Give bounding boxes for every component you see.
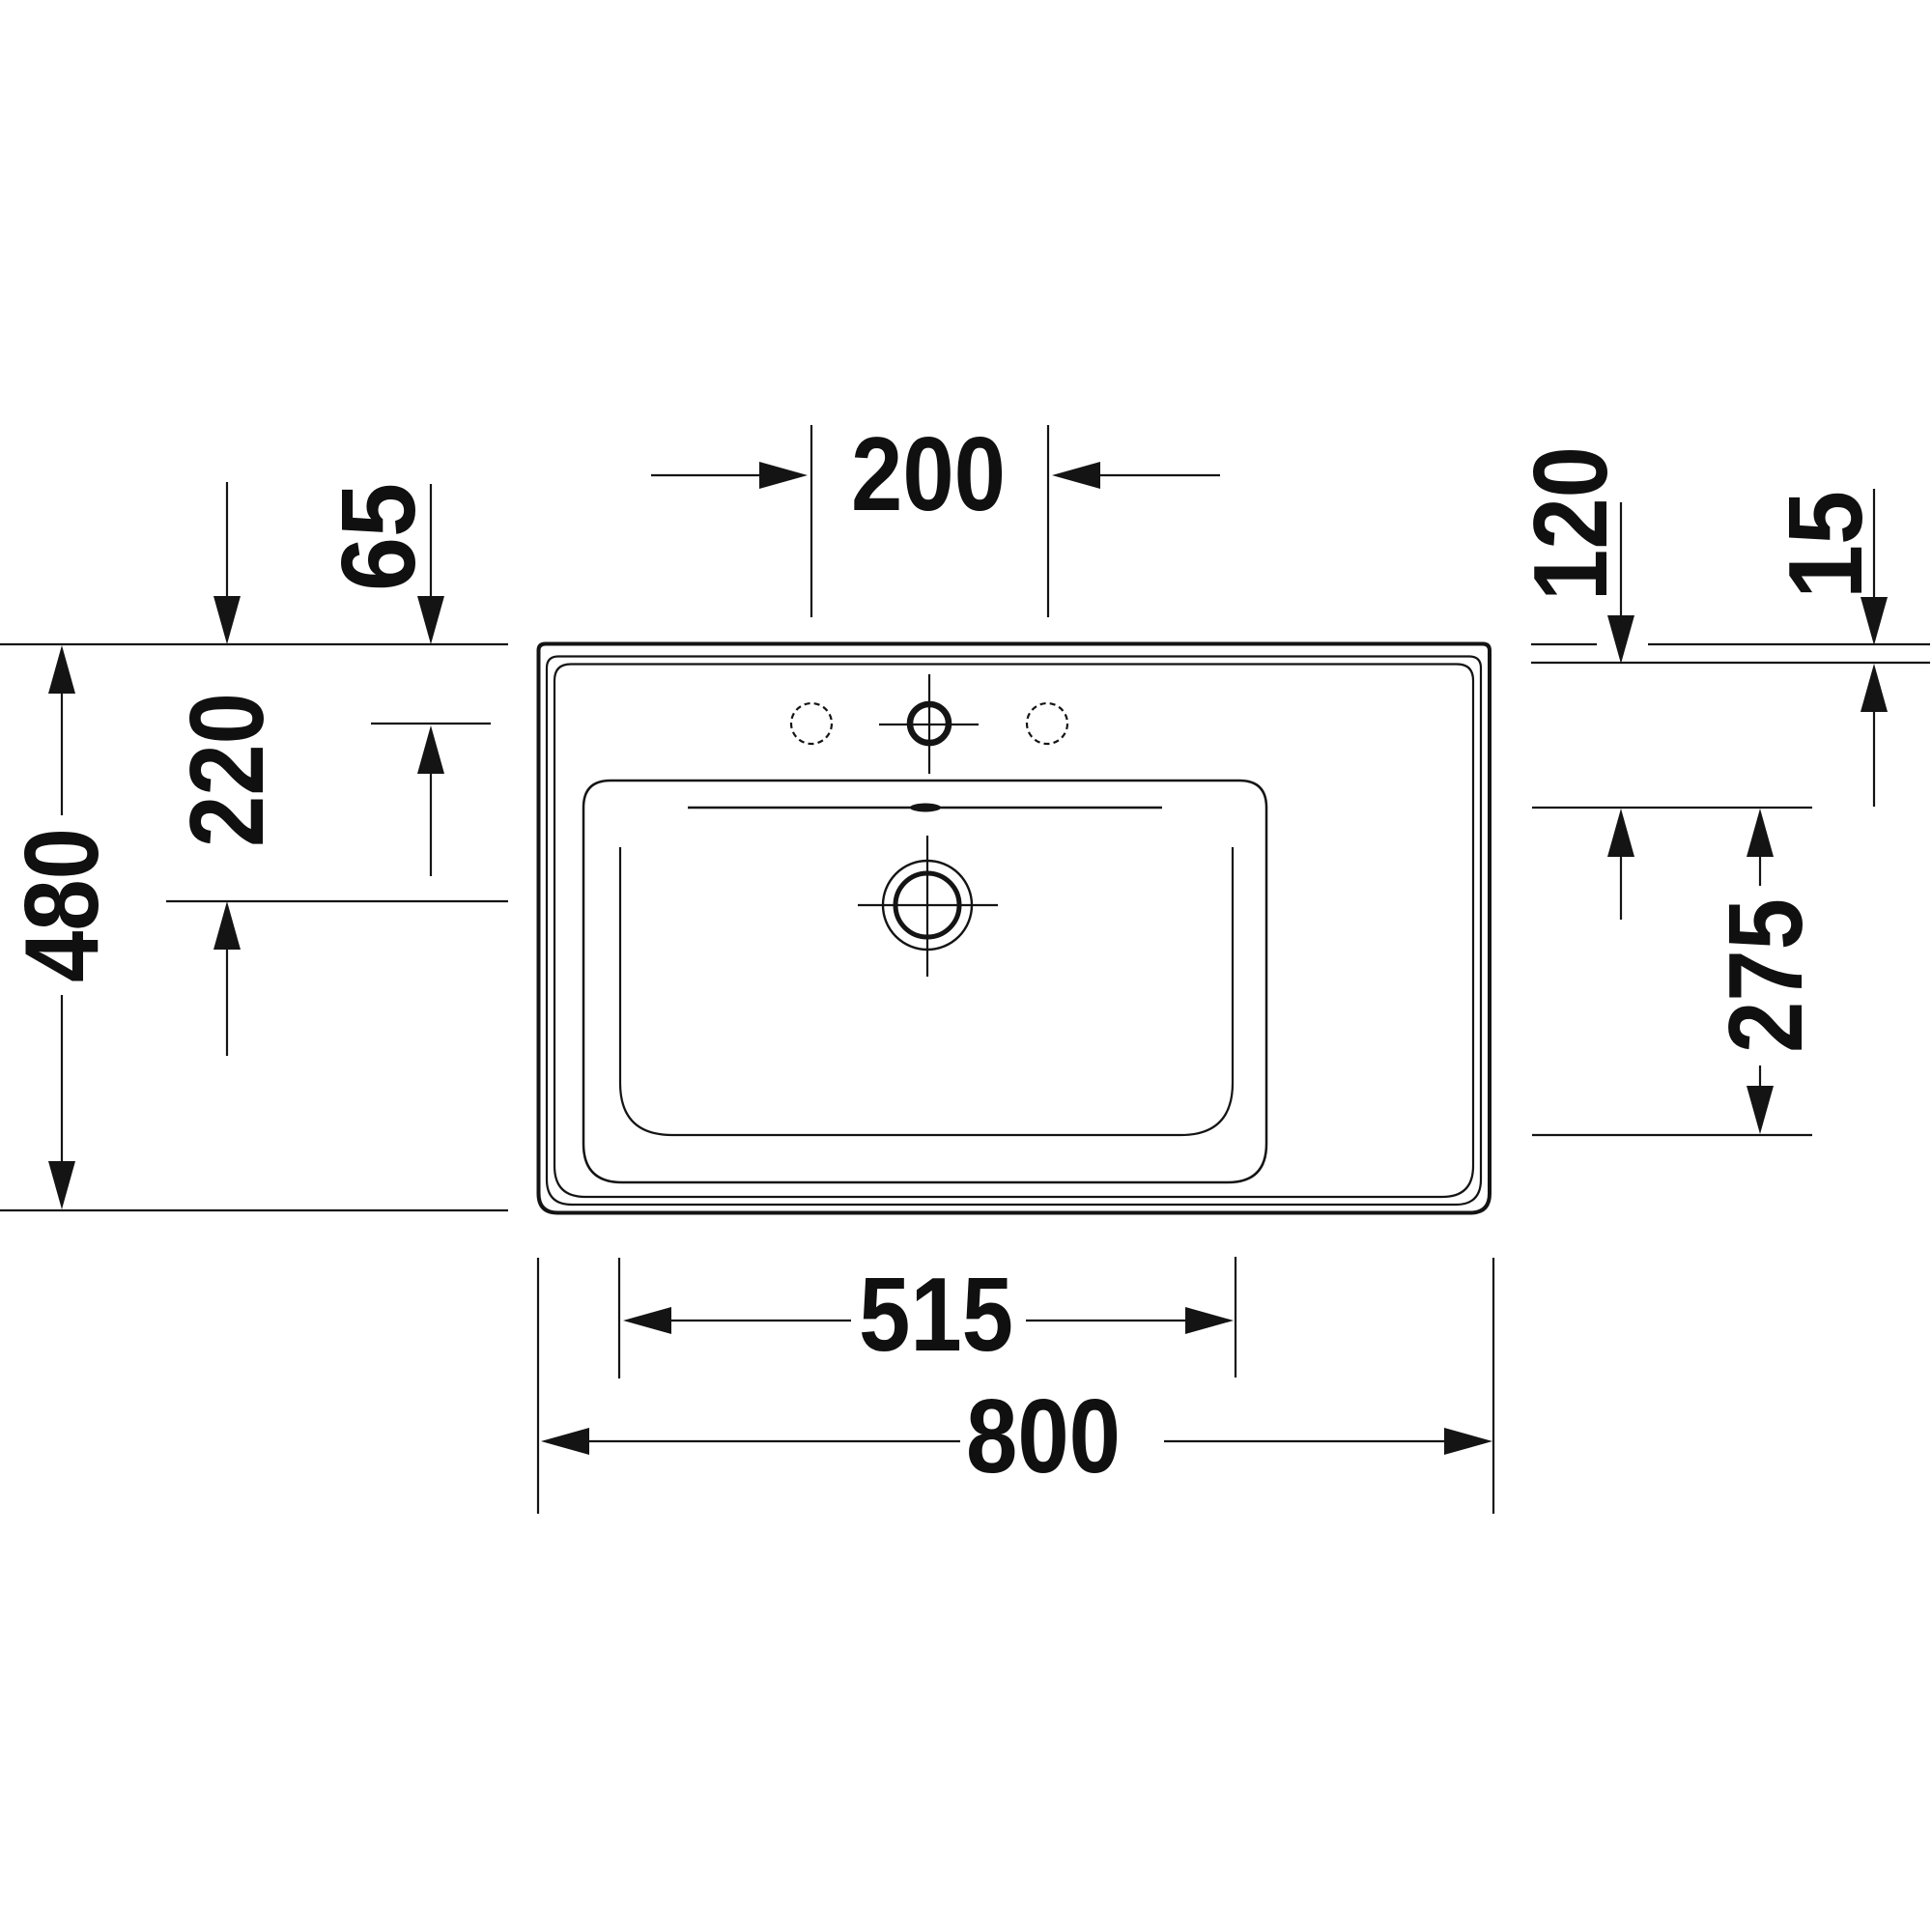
svg-text:120: 120 — [1512, 446, 1630, 601]
svg-text:480: 480 — [3, 828, 121, 982]
svg-text:15: 15 — [1767, 491, 1885, 599]
svg-text:65: 65 — [320, 483, 438, 591]
svg-text:515: 515 — [859, 1256, 1013, 1374]
svg-text:220: 220 — [168, 693, 286, 847]
svg-text:200: 200 — [851, 415, 1006, 533]
svg-text:800: 800 — [966, 1378, 1121, 1495]
svg-text:275: 275 — [1707, 898, 1825, 1053]
